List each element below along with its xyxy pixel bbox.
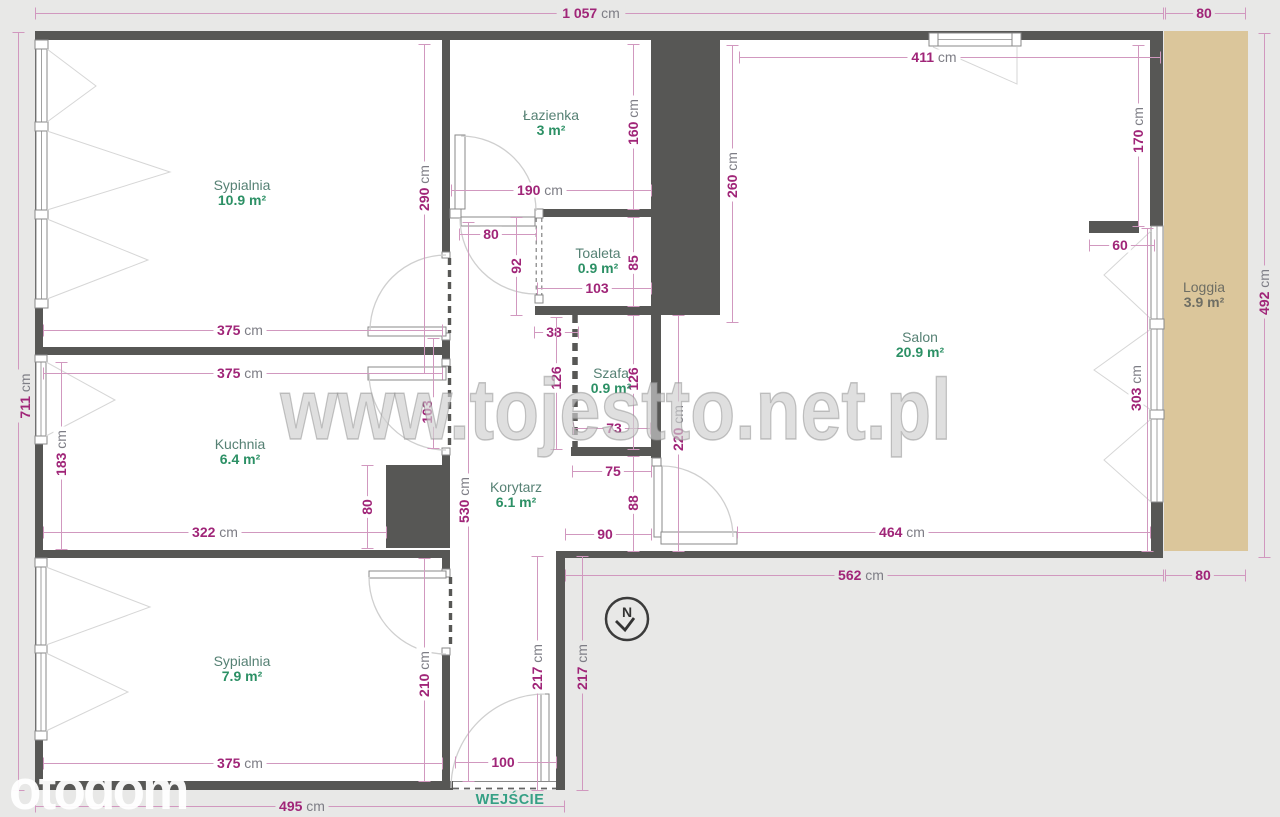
svg-text:303 cm: 303 cm (1128, 365, 1144, 411)
svg-text:N: N (622, 604, 632, 620)
svg-text:375 cm: 375 cm (217, 322, 263, 338)
svg-text:260 cm: 260 cm (724, 152, 740, 198)
svg-text:464 cm: 464 cm (879, 524, 925, 540)
svg-text:3 m²: 3 m² (537, 122, 566, 138)
svg-text:492 cm: 492 cm (1256, 269, 1272, 315)
svg-text:Kuchnia: Kuchnia (215, 436, 266, 452)
svg-text:530 cm: 530 cm (456, 477, 472, 523)
svg-text:80: 80 (1195, 567, 1211, 583)
svg-text:170 cm: 170 cm (1130, 107, 1146, 153)
svg-text:20.9 m²: 20.9 m² (896, 344, 945, 360)
svg-text:217 cm: 217 cm (529, 644, 545, 690)
svg-text:10.9 m²: 10.9 m² (218, 192, 267, 208)
svg-text:80: 80 (359, 499, 375, 515)
svg-text:210 cm: 210 cm (416, 651, 432, 697)
svg-text:100: 100 (491, 754, 515, 770)
svg-text:Loggia: Loggia (1183, 279, 1225, 295)
svg-text:290 cm: 290 cm (416, 165, 432, 211)
svg-text:411 cm: 411 cm (911, 49, 956, 65)
svg-text:1 057 cm: 1 057 cm (562, 5, 620, 21)
svg-text:80: 80 (1196, 5, 1212, 21)
svg-text:Łazienka: Łazienka (523, 107, 579, 123)
svg-text:80: 80 (483, 226, 499, 242)
svg-text:6.1 m²: 6.1 m² (496, 494, 537, 510)
svg-text:85: 85 (625, 255, 641, 271)
svg-text:183 cm: 183 cm (53, 430, 69, 476)
svg-text:Sypialnia: Sypialnia (214, 653, 271, 669)
svg-text:562 cm: 562 cm (838, 567, 884, 583)
svg-text:495 cm: 495 cm (279, 798, 325, 814)
svg-text:60: 60 (1112, 237, 1128, 253)
svg-text:6.4 m²: 6.4 m² (220, 451, 261, 467)
svg-text:92: 92 (508, 258, 524, 274)
svg-text:Sypialnia: Sypialnia (214, 177, 271, 193)
svg-text:160 cm: 160 cm (625, 99, 641, 145)
svg-text:www.tojestto.net.pl: www.tojestto.net.pl (279, 362, 951, 458)
svg-text:WEJŚCIE: WEJŚCIE (476, 790, 545, 808)
svg-text:217 cm: 217 cm (574, 644, 590, 690)
svg-text:Salon: Salon (902, 329, 938, 345)
svg-text:38: 38 (546, 324, 562, 340)
svg-text:375 cm: 375 cm (217, 755, 263, 771)
svg-text:0.9 m²: 0.9 m² (578, 260, 619, 276)
svg-text:otodom: otodom (9, 757, 187, 817)
svg-text:90: 90 (597, 526, 613, 542)
svg-text:3.9 m²: 3.9 m² (1184, 294, 1225, 310)
svg-text:711 cm: 711 cm (17, 373, 33, 418)
svg-text:103: 103 (585, 280, 609, 296)
svg-text:Korytarz: Korytarz (490, 479, 542, 495)
svg-text:88: 88 (625, 495, 641, 511)
svg-text:7.9 m²: 7.9 m² (222, 668, 263, 684)
svg-text:375 cm: 375 cm (217, 365, 263, 381)
svg-text:75: 75 (605, 463, 621, 479)
svg-text:190 cm: 190 cm (517, 182, 563, 198)
svg-text:322 cm: 322 cm (192, 524, 238, 540)
svg-text:Toaleta: Toaleta (575, 245, 620, 261)
